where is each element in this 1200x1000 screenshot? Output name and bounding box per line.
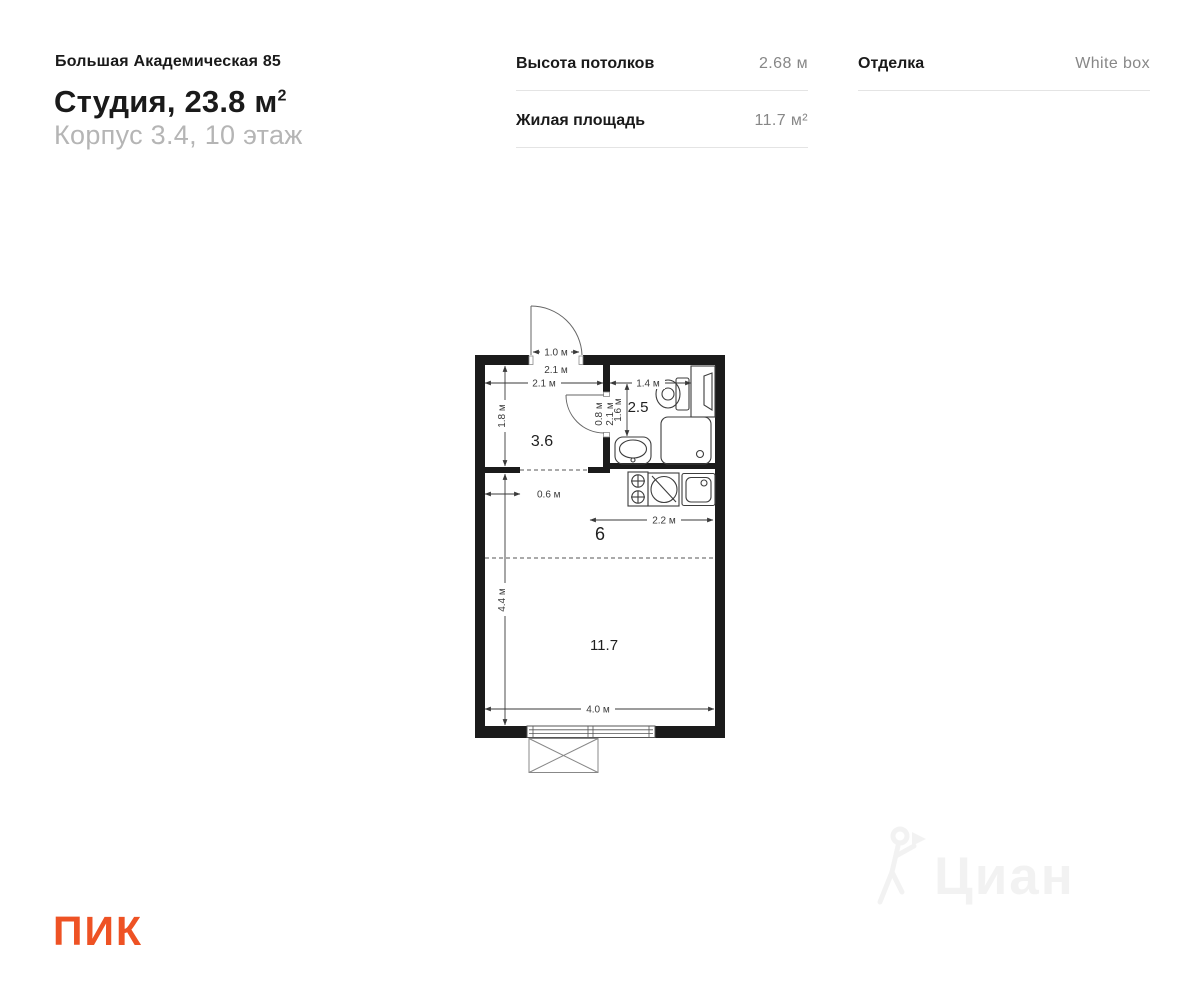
pik-logo: ПИК bbox=[53, 908, 143, 955]
shower-icon bbox=[661, 417, 711, 464]
room-label-bathroom: 2.5 bbox=[628, 399, 649, 416]
dim-hall-depth: 1.8 м bbox=[497, 404, 508, 428]
balcony-basket-icon bbox=[529, 739, 598, 773]
dim-bath-depth: 1.6 м bbox=[613, 398, 624, 422]
dim-living-width: 4.0 м bbox=[586, 705, 610, 716]
dim-bath-width: 1.4 м bbox=[636, 379, 660, 390]
dim-hall-width: 2.1 м bbox=[532, 379, 556, 390]
dim-bath-door: 0.8 м bbox=[594, 402, 605, 426]
room-label-living: 11.7 bbox=[590, 637, 618, 654]
hob-icon bbox=[628, 472, 648, 506]
kitchen-sink-icon bbox=[682, 474, 715, 506]
label-backings bbox=[499, 346, 681, 715]
room-label-kitchen: 6 bbox=[595, 524, 605, 544]
room-label-hallway: 3.6 bbox=[531, 433, 553, 450]
window-icon bbox=[527, 726, 655, 738]
dim-kitchen-width: 2.2 м bbox=[652, 516, 676, 527]
washbasin-icon bbox=[615, 437, 651, 464]
dim-hall-top: 2.1 м bbox=[544, 365, 568, 376]
cian-watermark-icon bbox=[868, 824, 928, 914]
dim-entry-door: 1.0 м bbox=[544, 348, 568, 359]
dim-living-depth: 4.4 м bbox=[497, 588, 508, 612]
kitchen-fixtures bbox=[628, 472, 715, 506]
washing-machine-icon bbox=[648, 473, 679, 506]
cian-watermark-text: Циан bbox=[934, 846, 1075, 907]
cian-watermark: Циан bbox=[868, 824, 928, 919]
dim-ledge: 0.6 м bbox=[537, 490, 561, 501]
bathtub-icon bbox=[691, 366, 715, 417]
floorplan-page: Большая Академическая 85 Студия, 23.8 м2… bbox=[0, 0, 1200, 1000]
